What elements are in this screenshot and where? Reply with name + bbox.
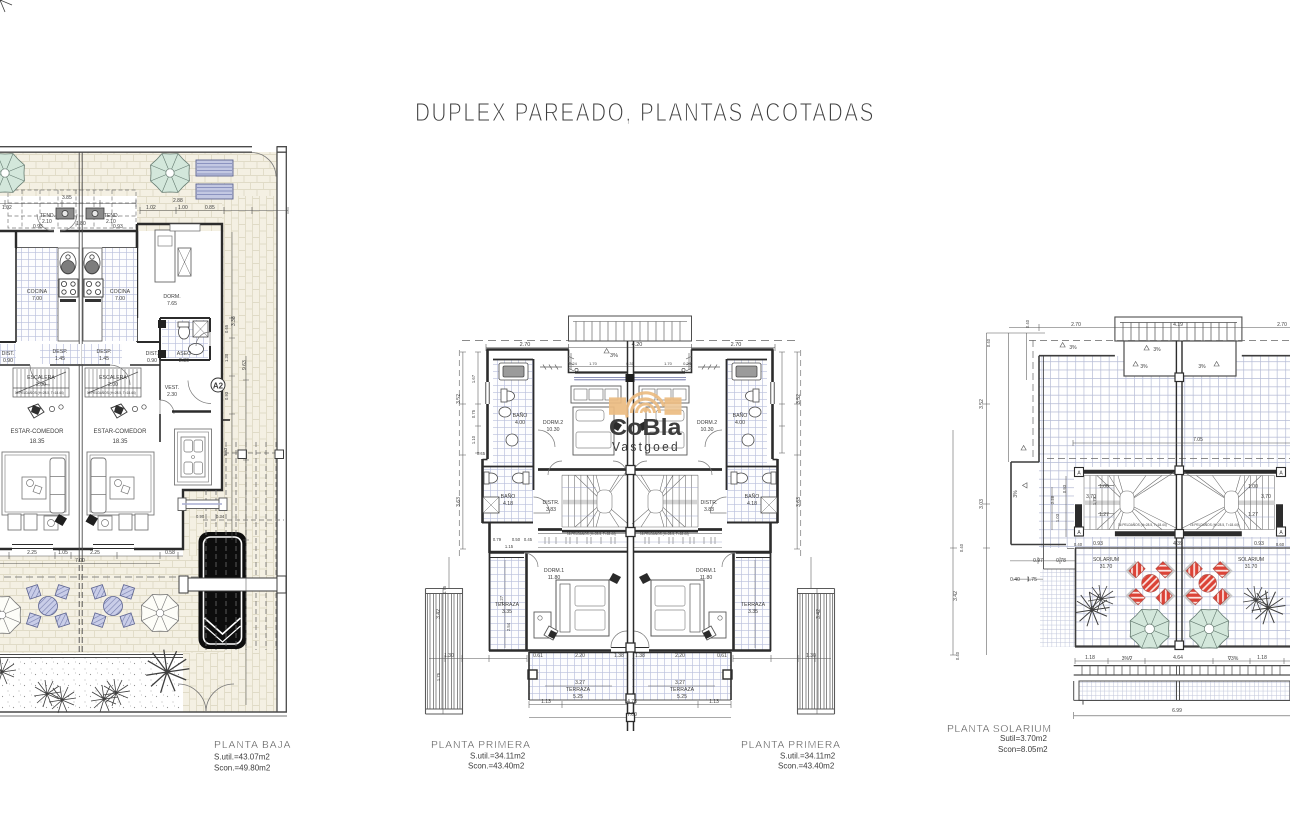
svg-text:7.00: 7.00 <box>75 558 85 564</box>
svg-text:DORM.1: DORM.1 <box>696 568 716 574</box>
svg-text:2.20: 2.20 <box>675 653 685 659</box>
svg-text:1.18: 1.18 <box>1257 655 1267 661</box>
svg-text:5.25: 5.25 <box>573 694 583 700</box>
svg-text:2.10: 2.10 <box>42 219 52 225</box>
svg-text:0.40: 0.40 <box>1074 542 1083 547</box>
svg-text:ESTAR-COMEDOR: ESTAR-COMEDOR <box>11 429 65 435</box>
svg-text:3.42: 3.42 <box>953 591 959 601</box>
svg-text:0.97: 0.97 <box>1033 558 1043 564</box>
svg-text:0.61: 0.61 <box>717 653 727 659</box>
svg-text:2.70: 2.70 <box>1071 322 1081 328</box>
svg-text:3.27: 3.27 <box>675 680 685 686</box>
svg-text:VEST.: VEST. <box>165 385 179 391</box>
svg-text:1.00: 1.00 <box>1248 484 1258 490</box>
svg-text:3.52: 3.52 <box>456 394 462 404</box>
svg-text:Scon.=43.40m2: Scon.=43.40m2 <box>468 762 525 771</box>
svg-text:4.18: 4.18 <box>503 501 513 507</box>
svg-text:4.64: 4.64 <box>1173 655 1183 661</box>
svg-text:0.79: 0.79 <box>493 537 502 542</box>
svg-text:1.03: 1.03 <box>1055 513 1060 522</box>
svg-text:18.35: 18.35 <box>29 439 45 445</box>
svg-text:0.34: 0.34 <box>216 514 225 519</box>
svg-text:COCINA: COCINA <box>27 289 48 295</box>
svg-text:1.00: 1.00 <box>178 205 188 211</box>
svg-text:DESP.: DESP. <box>53 349 68 355</box>
svg-text:2.25: 2.25 <box>27 550 37 556</box>
svg-text:7.65: 7.65 <box>167 301 177 307</box>
svg-text:2.30: 2.30 <box>179 358 189 364</box>
svg-text:2.25: 2.25 <box>90 550 100 556</box>
svg-text:0.40: 0.40 <box>959 543 964 552</box>
svg-text:0.93: 0.93 <box>33 224 43 230</box>
svg-text:Vastgoed: Vastgoed <box>612 439 680 454</box>
svg-text:0.40: 0.40 <box>1010 577 1020 583</box>
svg-text:1.13: 1.13 <box>541 699 551 705</box>
svg-text:2.70: 2.70 <box>520 342 531 348</box>
svg-text:1.75: 1.75 <box>442 585 447 594</box>
svg-text:TERRAZA: TERRAZA <box>670 687 695 693</box>
svg-text:0.40: 0.40 <box>1025 319 1030 328</box>
svg-text:2.28: 2.28 <box>1050 495 1055 504</box>
svg-text:1.13: 1.13 <box>709 699 719 705</box>
svg-text:ESTAR-COMEDOR: ESTAR-COMEDOR <box>94 429 148 435</box>
svg-text:1.75: 1.75 <box>436 672 441 681</box>
svg-text:16 PELDAÑOS (H=28.5, T=18.44): 16 PELDAÑOS (H=28.5, T=18.44) <box>1118 522 1167 527</box>
svg-text:DIST.: DIST. <box>146 351 159 357</box>
svg-text:0.93: 0.93 <box>224 391 229 400</box>
svg-text:3.03: 3.03 <box>979 499 985 509</box>
svg-text:0.93: 0.93 <box>1254 541 1264 547</box>
svg-text:DISTR.: DISTR. <box>542 500 559 506</box>
svg-text:0.90: 0.90 <box>3 358 13 364</box>
svg-text:11.80: 11.80 <box>548 575 561 581</box>
svg-text:0.40: 0.40 <box>955 651 960 660</box>
svg-text:3.52: 3.52 <box>979 399 985 409</box>
svg-text:1.45: 1.45 <box>55 356 65 362</box>
svg-text:3%: 3% <box>1153 347 1161 353</box>
svg-text:1.02: 1.02 <box>146 205 156 211</box>
svg-text:ASEO: ASEO <box>177 351 191 357</box>
svg-text:3.63: 3.63 <box>456 497 462 507</box>
svg-text:1.67: 1.67 <box>471 374 476 383</box>
svg-text:2.88: 2.88 <box>173 198 183 204</box>
svg-text:0.45: 0.45 <box>477 451 486 456</box>
svg-text:S.util.=34.11m2: S.util.=34.11m2 <box>780 752 836 761</box>
svg-text:7.00: 7.00 <box>32 296 42 302</box>
svg-text:DIST.: DIST. <box>2 351 15 357</box>
svg-text:1.27: 1.27 <box>1099 512 1109 518</box>
svg-text:1.38: 1.38 <box>614 653 624 659</box>
svg-text:S.util.=43.07m2: S.util.=43.07m2 <box>214 753 270 762</box>
svg-text:3.83: 3.83 <box>704 507 714 513</box>
svg-text:1.70: 1.70 <box>589 361 598 366</box>
svg-text:0.61: 0.61 <box>533 653 543 659</box>
svg-text:1.27: 1.27 <box>1248 512 1258 518</box>
svg-text:Scon.=43.40m2: Scon.=43.40m2 <box>778 762 835 771</box>
svg-text:Scon=8.05m2: Scon=8.05m2 <box>998 745 1048 754</box>
svg-text:16 PELDAÑOS (H=28.5, T=18.44): 16 PELDAÑOS (H=28.5, T=18.44) <box>567 531 616 536</box>
svg-text:10.30: 10.30 <box>701 427 714 433</box>
svg-text:3.35: 3.35 <box>502 609 512 615</box>
svg-text:Sutil=3.70m2: Sutil=3.70m2 <box>1000 734 1047 743</box>
svg-text:3.83: 3.83 <box>546 507 556 513</box>
svg-text:0.90: 0.90 <box>147 358 157 364</box>
svg-text:4.00: 4.00 <box>515 420 525 426</box>
svg-text:3.63: 3.63 <box>796 497 802 507</box>
svg-text:16 PELDAÑOS (H=28.5, T=18.44): 16 PELDAÑOS (H=28.5, T=18.44) <box>87 390 136 395</box>
svg-text:Scon.=49.80m2: Scon.=49.80m2 <box>214 764 271 773</box>
svg-text:2.70: 2.70 <box>1277 322 1287 328</box>
svg-text:16 PELDAÑOS (H=28.5, T=18.44): 16 PELDAÑOS (H=28.5, T=18.44) <box>15 390 64 395</box>
svg-text:COCINA: COCINA <box>110 289 131 295</box>
svg-text:3.42: 3.42 <box>436 609 442 619</box>
svg-text:1.30: 1.30 <box>444 653 454 659</box>
svg-text:3%: 3% <box>1069 345 1077 351</box>
svg-text:SOLARIUM: SOLARIUM <box>1093 557 1119 563</box>
svg-text:16 PELDAÑOS (H=28.5, T=18.44): 16 PELDAÑOS (H=28.5, T=18.44) <box>640 531 689 536</box>
svg-text:DUPLEX PAREADO, PLANTAS ACOTAD: DUPLEX PAREADO, PLANTAS ACOTADAS <box>415 97 875 127</box>
svg-text:5.43: 5.43 <box>223 447 228 456</box>
svg-text:3.85: 3.85 <box>62 195 72 201</box>
svg-text:4.73: 4.73 <box>627 699 637 705</box>
svg-text:2.00: 2.00 <box>36 382 46 388</box>
svg-text:DISTR.: DISTR. <box>700 500 717 506</box>
svg-text:BAÑO: BAÑO <box>513 412 528 419</box>
svg-text:1.02: 1.02 <box>2 205 12 211</box>
svg-text:3%: 3% <box>1013 490 1019 498</box>
svg-text:1.30: 1.30 <box>224 353 229 362</box>
svg-text:DESP.: DESP. <box>97 349 112 355</box>
svg-text:0.60: 0.60 <box>1276 542 1285 547</box>
svg-text:31.70: 31.70 <box>1100 564 1113 570</box>
svg-text:ESCALERA: ESCALERA <box>99 375 127 381</box>
svg-text:1.80: 1.80 <box>76 221 86 227</box>
svg-text:1.38: 1.38 <box>635 653 645 659</box>
svg-text:7.00: 7.00 <box>627 712 637 718</box>
svg-text:11.80: 11.80 <box>700 575 713 581</box>
svg-text:0.50: 0.50 <box>512 537 521 542</box>
svg-text:1.10: 1.10 <box>471 435 476 444</box>
svg-text:ESCALERA: ESCALERA <box>27 375 55 381</box>
svg-text:0.90: 0.90 <box>196 514 205 519</box>
svg-text:0.24: 0.24 <box>683 361 692 366</box>
svg-text:PLANTA BAJA: PLANTA BAJA <box>214 739 292 751</box>
svg-text:1.45: 1.45 <box>99 356 109 362</box>
svg-text:TERRAZA: TERRAZA <box>741 602 766 608</box>
svg-text:3%: 3% <box>1198 364 1206 370</box>
svg-text:7.00: 7.00 <box>115 296 125 302</box>
svg-text:1.15: 1.15 <box>505 544 514 549</box>
svg-text:3.27: 3.27 <box>499 595 504 604</box>
svg-text:16 PELDAÑOS (H=28.5, T=18.44): 16 PELDAÑOS (H=28.5, T=18.44) <box>1190 522 1239 527</box>
svg-text:1.05: 1.05 <box>58 550 68 556</box>
svg-text:∇3%: ∇3% <box>1227 656 1239 662</box>
svg-text:4.39: 4.39 <box>1173 541 1183 547</box>
svg-text:0.65: 0.65 <box>224 324 229 333</box>
svg-text:10.30: 10.30 <box>547 427 560 433</box>
svg-text:0.93: 0.93 <box>1093 541 1103 547</box>
svg-text:0.58: 0.58 <box>165 550 175 556</box>
svg-text:DORM.1: DORM.1 <box>544 568 564 574</box>
svg-text:0.85: 0.85 <box>205 205 215 211</box>
svg-text:BAÑO: BAÑO <box>733 412 748 419</box>
svg-text:S.util.=34.11m2: S.util.=34.11m2 <box>470 752 526 761</box>
svg-text:PLANTA PRIMERA: PLANTA PRIMERA <box>431 739 531 751</box>
svg-text:CoBla: CoBla <box>609 414 682 440</box>
svg-text:3.35: 3.35 <box>748 609 758 615</box>
svg-text:A2: A2 <box>213 382 224 391</box>
svg-text:2.70: 2.70 <box>731 342 742 348</box>
svg-text:2.20: 2.20 <box>575 653 585 659</box>
svg-text:3.27: 3.27 <box>575 680 585 686</box>
svg-text:0.45: 0.45 <box>524 537 533 542</box>
svg-text:6.99: 6.99 <box>1172 708 1182 714</box>
svg-text:3.52: 3.52 <box>796 394 802 404</box>
svg-text:1,70: 1,70 <box>1092 496 1097 505</box>
svg-text:7.05: 7.05 <box>1193 437 1203 443</box>
svg-text:9.63: 9.63 <box>242 360 248 370</box>
svg-text:1.75: 1.75 <box>1027 577 1037 583</box>
svg-text:31.70: 31.70 <box>1245 564 1258 570</box>
svg-text:0.40: 0.40 <box>986 338 991 347</box>
svg-text:TERRAZA: TERRAZA <box>566 687 591 693</box>
svg-text:3.38: 3.38 <box>231 316 237 326</box>
svg-text:0.75: 0.75 <box>471 409 476 418</box>
svg-text:1.00: 1.00 <box>1099 484 1109 490</box>
svg-text:1.30: 1.30 <box>806 653 816 659</box>
svg-text:BAÑO: BAÑO <box>501 493 516 500</box>
svg-text:1.70: 1.70 <box>664 361 673 366</box>
svg-text:3%∇: 3%∇ <box>1122 656 1133 662</box>
svg-text:DORM.: DORM. <box>163 294 180 300</box>
svg-text:2.54: 2.54 <box>506 622 511 631</box>
svg-text:DORM.2: DORM.2 <box>697 420 717 426</box>
svg-text:1.18: 1.18 <box>1085 655 1095 661</box>
svg-text:0.93: 0.93 <box>1062 484 1067 493</box>
svg-text:DORM.2: DORM.2 <box>543 420 563 426</box>
svg-text:3%: 3% <box>610 353 618 359</box>
svg-text:2.00: 2.00 <box>108 382 118 388</box>
svg-text:SOLARIUM: SOLARIUM <box>1238 557 1264 563</box>
svg-text:3,70: 3,70 <box>1261 494 1271 500</box>
svg-text:3.42: 3.42 <box>816 609 822 619</box>
svg-text:0.78: 0.78 <box>1056 558 1066 564</box>
svg-text:4.00: 4.00 <box>735 420 745 426</box>
svg-text:3%: 3% <box>1140 364 1148 370</box>
svg-text:PLANTA PRIMERA: PLANTA PRIMERA <box>741 739 841 751</box>
svg-text:0.93: 0.93 <box>113 224 123 230</box>
svg-text:2.30: 2.30 <box>167 392 177 398</box>
svg-text:5.25: 5.25 <box>677 694 687 700</box>
svg-text:4.19: 4.19 <box>1173 322 1183 328</box>
svg-text:18.35: 18.35 <box>112 439 128 445</box>
svg-text:4.18: 4.18 <box>747 501 757 507</box>
svg-text:BAÑO: BAÑO <box>745 493 760 500</box>
